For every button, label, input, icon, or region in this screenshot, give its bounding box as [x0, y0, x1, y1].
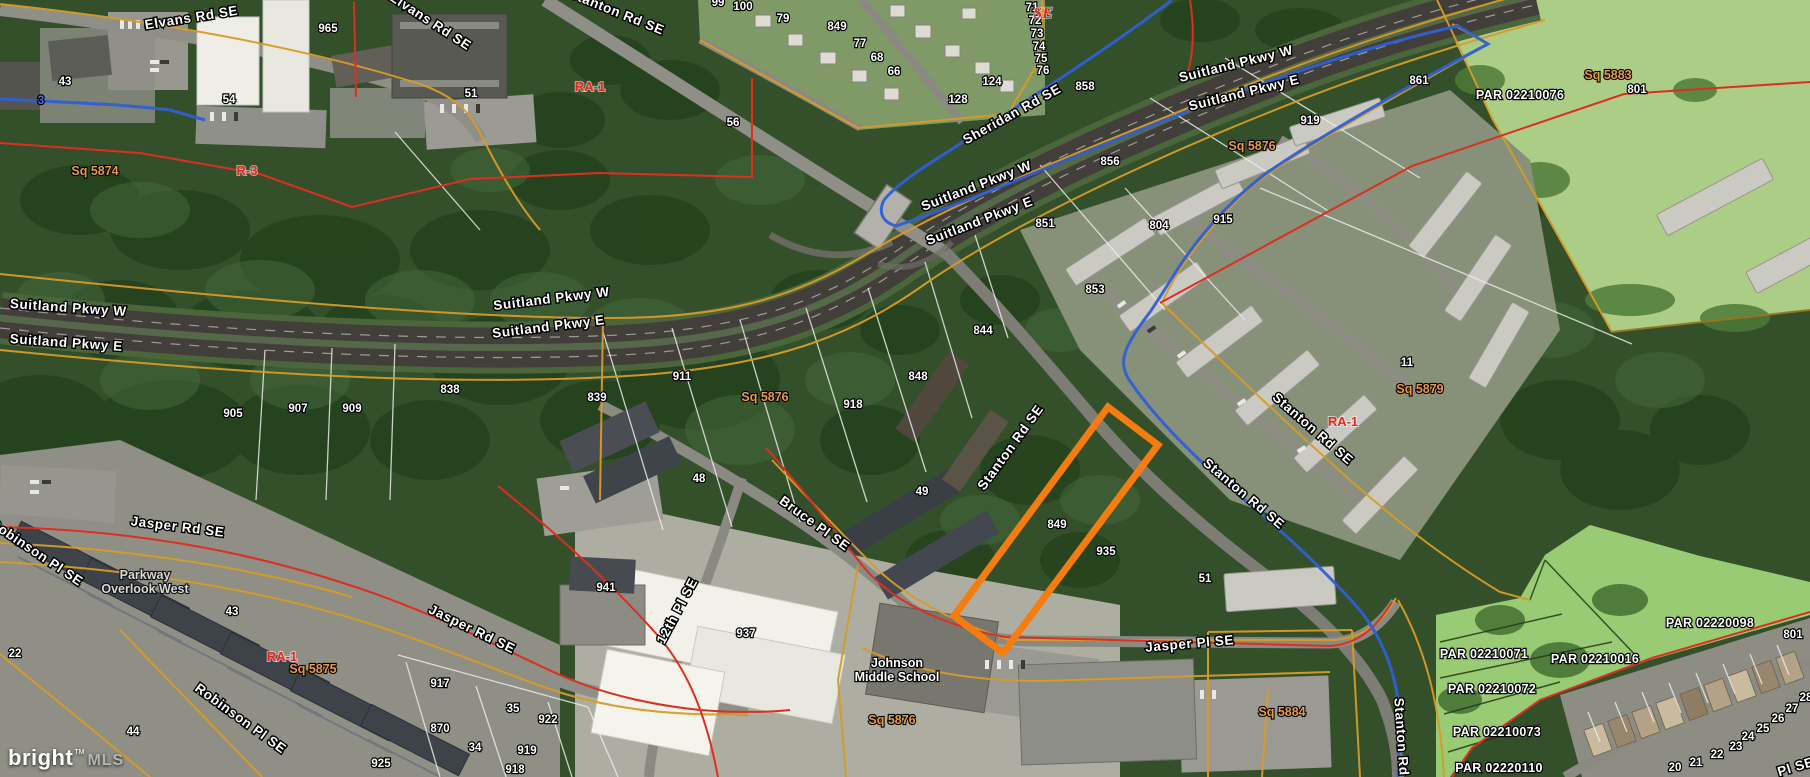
lot-number: 51	[465, 88, 478, 100]
lot-number: 74	[1033, 41, 1046, 53]
lot-number: 849	[1047, 519, 1066, 531]
lot-number: 51	[1199, 573, 1212, 585]
parcel-label: PAR 02210016	[1551, 652, 1639, 666]
zoning-label: R-3	[237, 163, 258, 178]
lot-number: 849	[827, 21, 846, 33]
lot-number: 128	[948, 94, 968, 106]
lot-number: 28	[1800, 692, 1810, 704]
lot-number: 25	[1757, 723, 1770, 735]
lot-number: 919	[517, 745, 536, 757]
lot-number: 801	[1783, 629, 1803, 641]
lot-number: 73	[1031, 28, 1044, 40]
lot-number: 56	[727, 117, 740, 129]
lot-number: 965	[318, 23, 338, 35]
watermark-brand: bright	[8, 745, 73, 771]
lot-number: 76	[1037, 65, 1050, 77]
square-label: Sq 5876	[868, 713, 915, 727]
lot-number: 838	[440, 384, 460, 396]
lot-number: 23	[1730, 741, 1743, 753]
lot-number: 21	[1690, 757, 1703, 769]
lot-number: 870	[430, 723, 449, 735]
lot-number: 856	[1100, 156, 1119, 168]
lot-number: 941	[596, 582, 616, 594]
lot-number: 915	[1213, 214, 1233, 226]
lot-number: 22	[1711, 749, 1724, 761]
lot-number: 804	[1149, 220, 1169, 232]
lot-number: 100	[733, 1, 752, 13]
lot-number: 848	[908, 371, 928, 383]
lot-number: 99	[712, 0, 725, 9]
lot-number: 11	[1401, 357, 1414, 369]
lot-number: 935	[1096, 546, 1116, 558]
lot-number: 35	[507, 703, 520, 715]
lot-number: 66	[888, 66, 901, 78]
lot-number: 922	[538, 714, 557, 726]
lot-number: 925	[371, 758, 391, 770]
lot-number: 77	[854, 38, 867, 50]
lot-number: 22	[9, 648, 22, 660]
lot-number: 839	[587, 392, 606, 404]
zoning-label: RA-1	[575, 79, 605, 94]
lot-number: 34	[469, 742, 482, 754]
lot-number: 801	[1627, 84, 1647, 96]
lot-number: 54	[223, 94, 236, 106]
lot-number: 44	[127, 726, 140, 738]
lot-number: 858	[1075, 81, 1095, 93]
lot-number: 909	[342, 403, 361, 415]
square-label: Sq 5874	[71, 164, 118, 178]
lot-number: 20	[1669, 762, 1682, 774]
watermark-tm: TM	[74, 745, 84, 756]
square-label: Sq 5876	[741, 390, 788, 404]
lot-number: 43	[226, 606, 239, 618]
parcel-label: PAR 02210071	[1440, 647, 1528, 661]
lot-number: 79	[777, 13, 790, 25]
square-label: Sq 5884	[1258, 705, 1305, 719]
lot-number: 911	[673, 371, 692, 383]
square-label: Sq 5883	[1584, 68, 1631, 82]
lot-number: 26	[1772, 713, 1785, 725]
brightmls-watermark: bright TM MLS	[8, 745, 124, 771]
square-label: Sq 5875	[289, 662, 336, 676]
lot-number: 27	[1786, 703, 1799, 715]
lot-number: 907	[288, 403, 307, 415]
lot-number: 75	[1035, 53, 1048, 65]
lot-number: 905	[223, 408, 243, 420]
zoning-label: SE	[1033, 5, 1053, 22]
square-label: Sq 5879	[1396, 382, 1443, 396]
lot-number: 49	[916, 486, 929, 498]
lot-number: 918	[505, 764, 525, 776]
lot-number: 917	[430, 678, 449, 690]
lot-number: 861	[1409, 75, 1429, 87]
lot-number: 918	[843, 399, 863, 411]
lot-number: 3	[38, 95, 44, 107]
square-label: Sq 5876	[1228, 139, 1275, 153]
lot-number: 844	[973, 325, 993, 337]
lot-number: 919	[1300, 115, 1319, 127]
lot-number: 24	[1742, 731, 1755, 743]
watermark-suffix: MLS	[87, 752, 124, 770]
zoning-label: RA-1	[1328, 414, 1358, 429]
parcel-label: PAR 02220110	[1455, 761, 1542, 775]
lot-number: 68	[871, 52, 884, 64]
parcel-label: PAR 02220098	[1666, 616, 1754, 630]
mls-map-screenshot: Elvans Rd SEElvans Rd SEStanton Rd SEShe…	[0, 0, 1810, 777]
parcel-label: PAR 02210073	[1453, 725, 1541, 739]
lot-number: 851	[1035, 218, 1055, 230]
lot-number: 124	[982, 76, 1002, 88]
lot-number: 48	[693, 473, 706, 485]
lot-number: 43	[59, 76, 72, 88]
parcel-label: PAR 02210076	[1476, 88, 1564, 102]
parcel-label: PAR 02210072	[1448, 682, 1536, 696]
map-canvas[interactable]: Elvans Rd SEElvans Rd SEStanton Rd SEShe…	[0, 0, 1810, 777]
lot-number: 937	[736, 628, 755, 640]
lot-number: 853	[1085, 284, 1104, 296]
